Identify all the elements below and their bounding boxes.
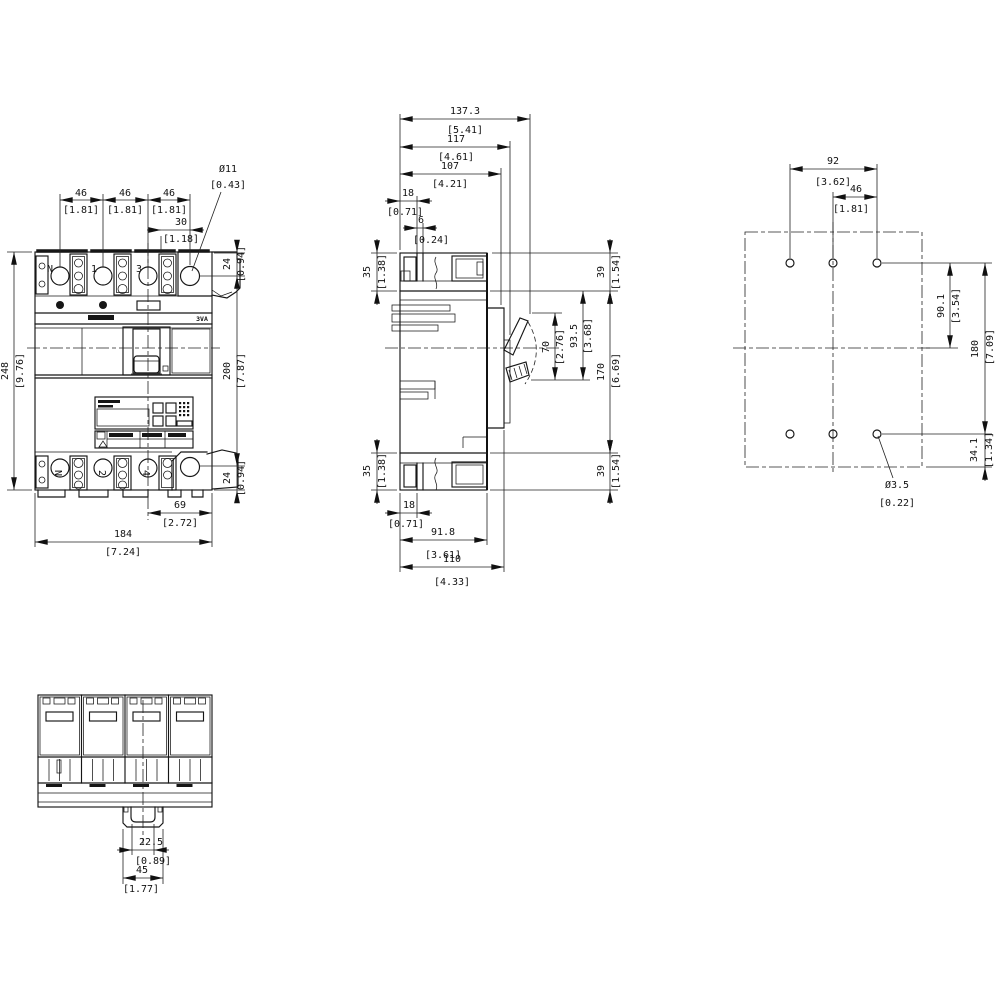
pole-label-n-top: N: [47, 264, 53, 275]
dim-term-6: 6 [0.24]: [403, 215, 449, 246]
svg-text:[0.94]: [0.94]: [236, 460, 247, 496]
dim-depth-117: 117 [4.61]: [400, 134, 510, 163]
side-view: 137.3 [5.41] 117 [4.61] 107 [4.21] 18 [0…: [362, 106, 622, 588]
mounting-feet: [38, 490, 203, 497]
terminal-block-top-2: [114, 254, 131, 295]
dim-to-edge-34-1: 34.1 [1.34]: [969, 432, 995, 481]
svg-text:[7.87]: [7.87]: [236, 353, 247, 389]
rating-plate: [95, 397, 193, 429]
svg-text:[4.21]: [4.21]: [432, 179, 468, 190]
svg-text:117: 117: [447, 134, 465, 145]
dim-handle-70: 70 [2.76]: [541, 313, 566, 380]
technical-drawing-canvas: 3VA: [0, 0, 1000, 1000]
svg-text:[1.54]: [1.54]: [611, 453, 622, 489]
pole-module-2: [84, 697, 124, 787]
svg-text:18: 18: [402, 188, 414, 199]
mounting-hole-bottom: [181, 458, 200, 477]
svg-text:[1.38]: [1.38]: [377, 453, 388, 489]
svg-text:[9.76]: [9.76]: [15, 353, 26, 389]
svg-text:[1.81]: [1.81]: [63, 205, 99, 216]
svg-text:24: 24: [222, 472, 233, 484]
svg-text:39: 39: [596, 266, 607, 278]
terminal-block-top-1: [70, 254, 87, 295]
svg-text:[0.43]: [0.43]: [210, 180, 246, 191]
svg-text:110: 110: [443, 554, 461, 565]
dim-span-180: 180 [7.09]: [970, 263, 996, 434]
bottom-view: 22.5 [0.89] 45 [1.77]: [38, 695, 212, 895]
pole-opening-n: [51, 267, 69, 285]
svg-text:93.5: 93.5: [569, 324, 580, 348]
svg-text:30: 30: [175, 217, 187, 228]
svg-text:[4.33]: [4.33]: [434, 577, 470, 588]
din-rail-cleats: [392, 305, 455, 399]
svg-text:[0.94]: [0.94]: [236, 246, 247, 282]
dim-edge-39-bottom: 39 [1.54]: [596, 439, 622, 504]
terminal-block-bottom-3: [159, 456, 176, 490]
dimension-drawing-page: 3VA: [0, 0, 1000, 1000]
dim-depth-110: 110 [4.33]: [400, 554, 504, 588]
svg-text:45: 45: [136, 865, 148, 876]
svg-text:[3.62]: [3.62]: [815, 177, 851, 188]
svg-text:[1.81]: [1.81]: [833, 204, 869, 215]
pole-module-4: [171, 697, 211, 787]
svg-text:46: 46: [850, 184, 862, 195]
dim-term-18-top: 18 [0.71]: [385, 188, 432, 218]
svg-text:92: 92: [827, 156, 839, 167]
breaker-handle: [131, 356, 162, 374]
svg-text:[1.81]: [1.81]: [107, 205, 143, 216]
svg-text:180: 180: [970, 340, 981, 358]
svg-text:184: 184: [114, 529, 132, 540]
svg-text:[7.24]: [7.24]: [105, 547, 141, 558]
dim-handle-93-5: 93.5 [3.68]: [569, 291, 594, 380]
dim-term-18-bottom: 18 [0.71]: [385, 500, 432, 530]
svg-text:[1.38]: [1.38]: [377, 254, 388, 290]
drill-dimensions: 92 [3.62] 46 [1.81] 90.1 [3.54] 180 [7.0…: [790, 156, 996, 509]
dim-hole-offset-30: 30 [1.18]: [147, 217, 204, 253]
dim-width-184: 184 [7.24]: [35, 529, 212, 558]
dim-height-248: 248 [9.76]: [0, 252, 32, 490]
side-body: [385, 253, 560, 490]
bottom-dimensions: 22.5 [0.89] 45 [1.77]: [117, 824, 171, 895]
pole-label-1: 1: [91, 264, 97, 275]
pole-label-n-bottom: N: [52, 470, 63, 476]
break-line-top: [435, 257, 437, 289]
svg-text:34.1: 34.1: [969, 438, 980, 462]
svg-text:35: 35: [362, 465, 373, 477]
dim-pitch-92: 92 [3.62]: [790, 156, 877, 188]
svg-text:107: 107: [441, 161, 459, 172]
svg-text:170: 170: [596, 363, 607, 381]
svg-text:200: 200: [222, 362, 233, 380]
svg-text:[3.54]: [3.54]: [951, 288, 962, 324]
dim-right-hole-column: 24 [0.94] 200 [7.87] 24 [0.94]: [200, 240, 247, 503]
front-body: 3VA: [35, 251, 240, 497]
svg-text:Ø11: Ø11: [219, 163, 237, 175]
dim-edge-39-top: 39 [1.54]: [596, 239, 622, 305]
handle-lever-on: [504, 318, 528, 355]
svg-text:90.1: 90.1: [936, 294, 947, 318]
svg-text:[1.77]: [1.77]: [123, 884, 159, 895]
svg-text:46: 46: [75, 188, 87, 199]
dim-depth-107: 107 [4.21]: [400, 161, 501, 190]
svg-text:69: 69: [174, 500, 186, 511]
dim-pitch-46: 46 [1.81]: [833, 184, 877, 215]
svg-text:46: 46: [119, 188, 131, 199]
svg-text:22.5: 22.5: [139, 837, 163, 848]
svg-text:[3.68]: [3.68]: [583, 318, 594, 354]
svg-text:[6.69]: [6.69]: [611, 353, 622, 389]
brand-label: 3VA: [196, 315, 208, 323]
svg-text:[0.71]: [0.71]: [388, 519, 424, 530]
svg-text:[7.09]: [7.09]: [985, 329, 996, 365]
handle-swing-arc: [525, 322, 536, 384]
svg-text:137.3: 137.3: [450, 106, 480, 117]
svg-text:[2.72]: [2.72]: [162, 518, 198, 529]
pole-module-3: [127, 697, 167, 787]
terminal-block-top-3: [159, 254, 176, 295]
svg-text:[1.54]: [1.54]: [611, 254, 622, 290]
svg-text:24: 24: [222, 258, 233, 270]
svg-text:[1.18]: [1.18]: [163, 234, 199, 245]
bottom-body: [38, 695, 212, 845]
callout-hole-dia-3-5: Ø3.5 [0.22]: [878, 436, 915, 509]
svg-text:[0.24]: [0.24]: [413, 235, 449, 246]
svg-text:[1.81]: [1.81]: [151, 205, 187, 216]
dim-to-center-90-1: 90.1 [3.54]: [936, 263, 962, 348]
svg-text:248: 248: [0, 362, 11, 380]
svg-text:46: 46: [163, 188, 175, 199]
warning-triangle-icon: [99, 441, 107, 447]
pole-label-4: 4: [140, 470, 151, 476]
handle-mechanism: [487, 308, 536, 428]
dim-term-35-bottom: 35 [1.38]: [362, 439, 388, 504]
svg-text:35: 35: [362, 266, 373, 278]
label-strip: [95, 431, 193, 448]
svg-text:[2.76]: [2.76]: [555, 329, 566, 365]
dim-term-35-top: 35 [1.38]: [362, 239, 388, 305]
pole-label-3: 3: [136, 264, 142, 275]
drill-holes: [786, 259, 881, 438]
pole-label-2: 2: [96, 470, 107, 476]
mounting-flange-top: [178, 252, 212, 296]
dim-body-170: 170 [6.69]: [596, 291, 622, 453]
side-dimensions: 137.3 [5.41] 117 [4.61] 107 [4.21] 18 [0…: [362, 106, 622, 588]
svg-text:6: 6: [418, 215, 424, 226]
dim-depth-137-3: 137.3 [5.41]: [400, 106, 530, 136]
dim-pole-pitch-46: 46 [1.81] 46 [1.81] 46 [1.81]: [60, 188, 190, 267]
code-dots: [179, 402, 189, 416]
terminal-block-bottom-1: [70, 456, 87, 490]
drilling-plan: 92 [3.62] 46 [1.81] 90.1 [3.54] 180 [7.0…: [733, 156, 996, 509]
svg-text:91.8: 91.8: [431, 527, 455, 538]
mounting-hole-top: [181, 267, 200, 286]
svg-text:Ø3.5: Ø3.5: [885, 479, 909, 491]
svg-text:18: 18: [403, 500, 415, 511]
svg-text:39: 39: [596, 465, 607, 477]
front-view: 3VA: [0, 163, 247, 558]
pole-module-1: [40, 697, 80, 787]
svg-text:[0.22]: [0.22]: [879, 498, 915, 509]
svg-text:70: 70: [541, 341, 552, 353]
terminal-block-bottom-2: [114, 456, 131, 490]
dim-din-45: 45 [1.77]: [123, 865, 163, 895]
svg-text:[1.34]: [1.34]: [984, 432, 995, 468]
